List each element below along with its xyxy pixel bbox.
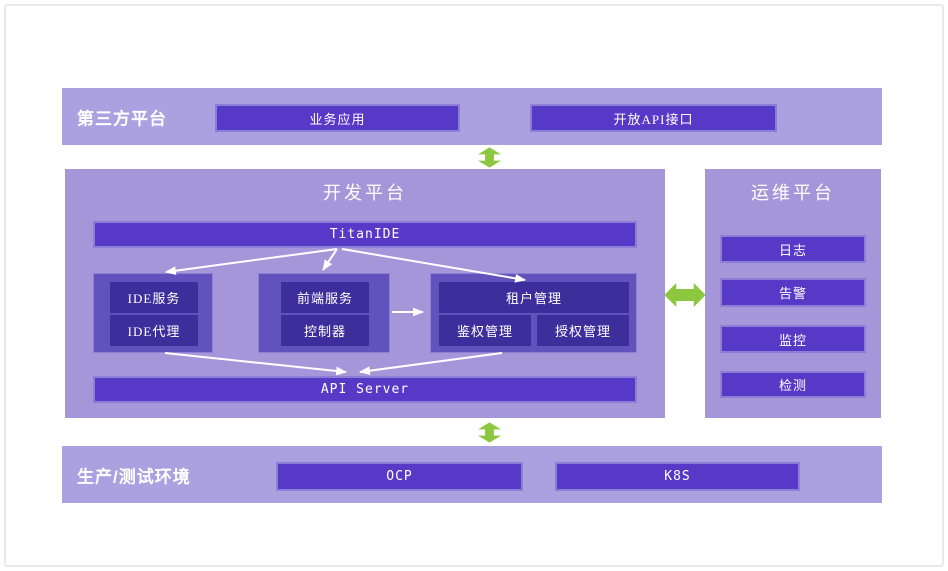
titan-ide-box: TitanIDE — [93, 221, 637, 248]
business-app-box: 业务应用 — [215, 104, 460, 132]
vertical-double-arrow-icon — [478, 146, 501, 169]
detection-box: 检测 — [720, 371, 866, 398]
controller-box: 控制器 — [281, 315, 369, 346]
alerts-box: 告警 — [720, 278, 866, 307]
ide-group: IDE服务 IDE代理 — [93, 273, 213, 353]
api-server-box: API Server — [93, 376, 637, 403]
open-api-box: 开放API接口 — [530, 104, 777, 132]
k8s-box: K8S — [555, 462, 800, 491]
tenant-mgmt-box: 租户管理 — [439, 282, 629, 313]
ide-proxy-box: IDE代理 — [110, 315, 198, 346]
ops-platform-title: 运维平台 — [705, 179, 881, 205]
tenant-group: 租户管理 鉴权管理 授权管理 — [430, 273, 637, 353]
frontend-group: 前端服务 控制器 — [258, 273, 390, 353]
ops-platform-panel: 运维平台 日志 告警 监控 检测 — [705, 169, 881, 418]
connector-titanide-to-ide — [166, 249, 337, 272]
dev-platform-title: 开发平台 — [65, 179, 665, 205]
frontend-service-box: 前端服务 — [281, 282, 369, 313]
production-env-band: 生产/测试环境 OCP K8S — [62, 446, 882, 503]
connector-tenant-to-apiserver — [360, 353, 502, 372]
production-env-title: 生产/测试环境 — [77, 462, 191, 487]
dev-platform-panel: 开发平台 TitanIDE IDE服务 IDE代理 前端服务 控制器 租户管理 … — [65, 169, 665, 418]
third-party-platform-band: 第三方平台 业务应用 开放API接口 — [62, 88, 882, 145]
third-party-platform-title: 第三方平台 — [77, 104, 167, 129]
ide-service-box: IDE服务 — [110, 282, 198, 313]
connector-ide-to-apiserver — [165, 353, 346, 372]
ocp-box: OCP — [276, 462, 523, 491]
authn-mgmt-box: 鉴权管理 — [439, 315, 531, 346]
logs-box: 日志 — [720, 235, 866, 263]
connector-titanide-to-frontend — [323, 249, 337, 270]
authz-mgmt-box: 授权管理 — [537, 315, 629, 346]
vertical-double-arrow-icon — [478, 421, 501, 444]
architecture-diagram: 第三方平台 业务应用 开放API接口 开发平台 TitanIDE IDE服务 I… — [0, 0, 948, 571]
horizontal-double-arrow-icon — [664, 283, 706, 307]
monitoring-box: 监控 — [720, 325, 866, 353]
